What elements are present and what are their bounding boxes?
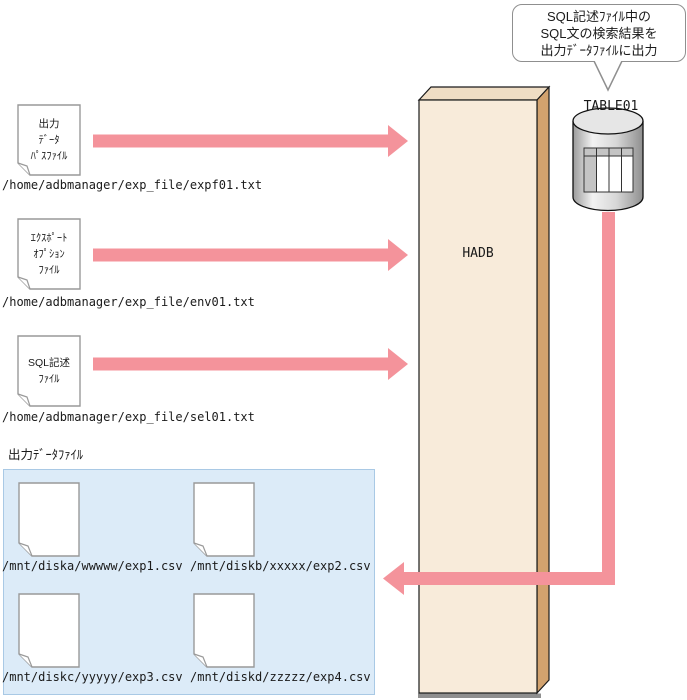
callout-tail bbox=[586, 61, 630, 94]
output-area-label: 出力ﾃﾞｰﾀﾌｧｲﾙ bbox=[8, 444, 83, 463]
file-label-line: ﾌｧｲﾙ bbox=[39, 371, 60, 387]
callout-bubble: SQL記述ﾌｧｲﾙ中の SQL文の検索結果を 出力ﾃﾞｰﾀﾌｧｲﾙに出力 bbox=[512, 4, 686, 62]
file-label-line: ｵﾌﾟｼｮﾝ bbox=[33, 246, 65, 262]
file-icon-exp2 bbox=[193, 482, 255, 557]
table-grid-icon bbox=[584, 148, 633, 192]
file-path: /mnt/diskd/zzzzz/exp4.csv bbox=[190, 670, 371, 684]
page-icon bbox=[193, 593, 255, 668]
file-icon-sql: SQL記述 ﾌｧｲﾙ bbox=[17, 335, 81, 407]
diagram-hadb-export: SQL記述ﾌｧｲﾙ中の SQL文の検索結果を 出力ﾃﾞｰﾀﾌｧｲﾙに出力 TAB… bbox=[0, 0, 687, 700]
hadb-pillar bbox=[418, 87, 549, 698]
file-label-line: ﾊﾟｽﾌｧｲﾙ bbox=[31, 148, 68, 164]
file-icon-exp1 bbox=[18, 482, 80, 557]
table-name-label: TABLE01 bbox=[573, 99, 649, 114]
file-label-line: ﾌｧｲﾙ bbox=[39, 262, 60, 278]
file-label-line: ｴｸｽﾎﾟｰﾄ bbox=[31, 230, 68, 246]
file-label-line: ﾃﾞｰﾀ bbox=[39, 132, 60, 148]
arrow-output-data-path-file bbox=[93, 125, 408, 157]
file-icon-output-data-path: 出力 ﾃﾞｰﾀ ﾊﾟｽﾌｧｲﾙ bbox=[17, 104, 81, 176]
file-icon-export-option: ｴｸｽﾎﾟｰﾄ ｵﾌﾟｼｮﾝ ﾌｧｲﾙ bbox=[17, 218, 81, 290]
file-path: /home/adbmanager/exp_file/sel01.txt bbox=[2, 410, 255, 424]
callout-line: SQL記述ﾌｧｲﾙ中の bbox=[547, 8, 651, 25]
file-icon-exp4 bbox=[193, 593, 255, 668]
callout-line: SQL文の検索結果を bbox=[540, 25, 657, 42]
file-path: /home/adbmanager/exp_file/env01.txt bbox=[2, 295, 255, 309]
file-label-line: SQL記述 bbox=[28, 355, 70, 371]
file-path: /home/adbmanager/exp_file/expf01.txt bbox=[2, 178, 262, 192]
callout-line: 出力ﾃﾞｰﾀﾌｧｲﾙに出力 bbox=[540, 42, 657, 59]
database-cylinder bbox=[573, 108, 643, 211]
page-icon bbox=[18, 482, 80, 557]
page-icon bbox=[18, 593, 80, 668]
page-icon bbox=[193, 482, 255, 557]
file-label-line: 出力 bbox=[39, 116, 60, 132]
arrow-sql-file bbox=[93, 348, 408, 380]
arrow-export-option-file bbox=[93, 239, 408, 271]
file-path: /mnt/diskb/xxxxx/exp2.csv bbox=[190, 559, 371, 573]
hadb-label: HADB bbox=[419, 246, 537, 261]
file-path: /mnt/diska/wwwww/exp1.csv bbox=[2, 559, 183, 573]
file-icon-exp3 bbox=[18, 593, 80, 668]
file-path: /mnt/diskc/yyyyy/exp3.csv bbox=[2, 670, 183, 684]
